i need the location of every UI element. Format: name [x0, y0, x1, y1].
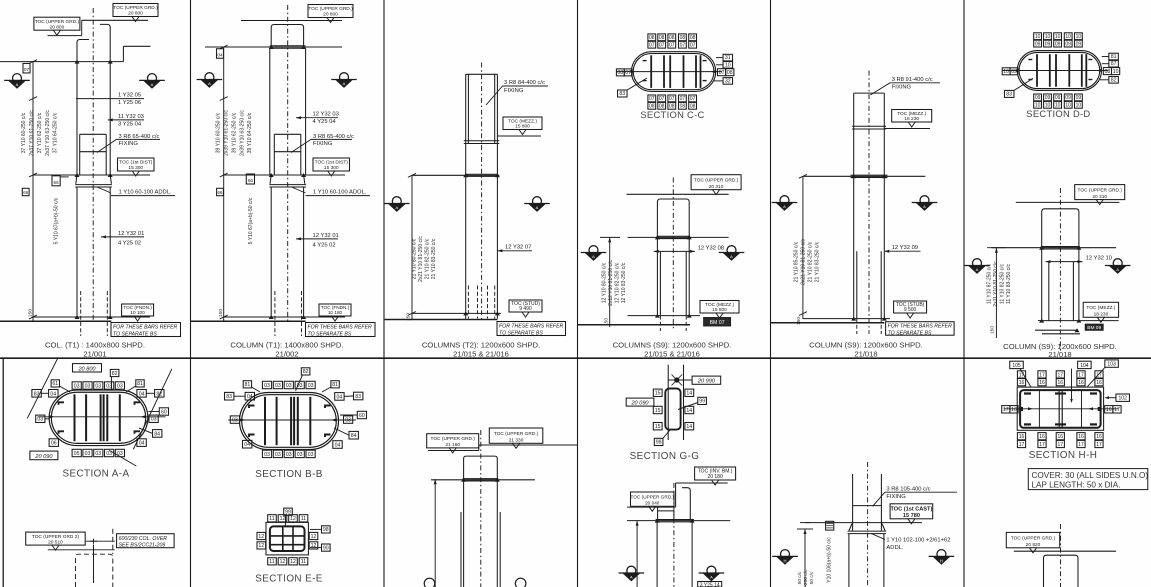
svg-text:21 Y10 80-250 c/c: 21 Y10 80-250 c/c [412, 238, 418, 279]
svg-text:15: 15 [655, 424, 661, 430]
svg-text:17: 17 [1114, 407, 1120, 413]
svg-text:21/018: 21/018 [854, 350, 877, 359]
svg-text:87: 87 [1111, 61, 1117, 67]
svg-text:2x39 Y10 61-250 c/c: 2x39 Y10 61-250 c/c [223, 110, 229, 156]
svg-text:4 Y25 02: 4 Y25 02 [118, 241, 141, 247]
svg-text:20 800: 20 800 [323, 12, 338, 18]
svg-text:11: 11 [269, 516, 274, 522]
svg-text:09: 09 [1045, 41, 1051, 47]
svg-text:03: 03 [264, 383, 270, 389]
svg-text:21 Y10 82-250 c/c: 21 Y10 82-250 c/c [425, 238, 431, 279]
svg-text:TOC (MEZZ.): TOC (MEZZ.) [897, 111, 926, 117]
svg-text:12: 12 [290, 559, 296, 565]
svg-text:11 Y10 83-250 c/c: 11 Y10 83-250 c/c [1006, 263, 1012, 304]
svg-text:21 Y10 82-250 c/c: 21 Y10 82-250 c/c [808, 241, 814, 282]
svg-text:83: 83 [619, 91, 625, 97]
svg-text:03: 03 [286, 383, 292, 389]
svg-text:11: 11 [269, 559, 274, 565]
svg-text:TOC (UPPER GRD.): TOC (UPPER GRD.) [308, 6, 353, 12]
svg-text:SECTION H-H: SECTION H-H [1029, 450, 1098, 461]
svg-text:600/230 COL. OVER: 600/230 COL. OVER [119, 536, 168, 542]
svg-text:09: 09 [1055, 95, 1061, 101]
svg-text:03: 03 [264, 452, 270, 458]
svg-text:09: 09 [1045, 95, 1051, 101]
svg-text:07: 07 [690, 96, 696, 102]
svg-text:09: 09 [1035, 95, 1041, 101]
svg-text:17: 17 [1058, 442, 1064, 448]
svg-text:08: 08 [659, 35, 665, 41]
svg-text:10: 10 [1113, 69, 1119, 75]
svg-text:TO SEPARATE BS: TO SEPARATE BS [113, 332, 157, 338]
svg-text:TOC (UPPER GRD.): TOC (UPPER GRD.) [430, 436, 475, 442]
svg-text:2x12 Y10 81-250 c/c: 2x12 Y10 81-250 c/c [608, 260, 614, 306]
svg-text:15 300: 15 300 [128, 165, 143, 171]
svg-text:150: 150 [604, 318, 610, 326]
svg-text:12 Y32 10: 12 Y32 10 [1086, 255, 1112, 261]
svg-text:16: 16 [1106, 407, 1112, 413]
svg-text:03: 03 [297, 383, 303, 389]
svg-text:09: 09 [1065, 95, 1071, 101]
svg-text:17: 17 [1003, 407, 1009, 413]
svg-text:03: 03 [106, 451, 112, 457]
svg-text:17: 17 [1096, 442, 1102, 448]
svg-text:98: 98 [323, 527, 329, 533]
svg-text:150: 150 [406, 313, 412, 321]
svg-text:12: 12 [290, 516, 296, 522]
svg-text:17: 17 [1078, 442, 1084, 448]
svg-text:12: 12 [311, 543, 317, 549]
svg-text:03: 03 [308, 383, 314, 389]
svg-text:08: 08 [649, 35, 655, 41]
svg-text:TOC (UPPER GRD 2): TOC (UPPER GRD 2) [32, 534, 79, 540]
svg-text:81: 81 [245, 382, 251, 388]
svg-text:150: 150 [796, 317, 802, 325]
svg-text:08: 08 [690, 35, 696, 41]
svg-text:06: 06 [51, 441, 57, 447]
svg-text:12 Y10 82-250 c/c: 12 Y10 82-250 c/c [615, 262, 621, 303]
svg-text:37 Y10 64-250 c/c: 37 Y10 64-250 c/c [53, 112, 59, 153]
svg-text:17: 17 [1039, 372, 1045, 378]
svg-text:03: 03 [275, 452, 281, 458]
svg-text:TO SEPARATE BS: TO SEPARATE BS [499, 331, 543, 337]
svg-text:03: 03 [345, 418, 351, 424]
svg-text:SECTION G-G: SECTION G-G [630, 451, 700, 462]
svg-text:15 800: 15 800 [515, 124, 530, 130]
svg-text:09: 09 [1076, 41, 1082, 47]
svg-text:08: 08 [617, 70, 623, 76]
svg-text:12 Y10 80-250 c/c: 12 Y10 80-250 c/c [602, 262, 608, 303]
svg-text:FIXING: FIXING [886, 494, 906, 500]
svg-text:12 Y32 08: 12 Y32 08 [698, 245, 724, 251]
svg-text:A: A [730, 254, 733, 259]
svg-text:05: 05 [74, 451, 80, 457]
svg-text:1 Y32 05: 1 Y32 05 [118, 93, 141, 99]
svg-text:12: 12 [258, 543, 264, 549]
svg-text:03: 03 [106, 383, 112, 389]
svg-text:03: 03 [117, 383, 123, 389]
svg-text:37 Y10 60-250 c/c: 37 Y10 60-250 c/c [21, 112, 27, 153]
svg-text:12: 12 [280, 559, 286, 565]
svg-text:21 Y10 83-250 c/c: 21 Y10 83-250 c/c [815, 241, 821, 282]
svg-text:12 Y32 07: 12 Y32 07 [505, 245, 531, 251]
svg-text:03: 03 [37, 417, 43, 423]
svg-text:12 Y32 09: 12 Y32 09 [892, 245, 918, 251]
svg-text:21/002: 21/002 [275, 350, 298, 359]
svg-text:5 Y10 67(a+b)-50 c/c: 5 Y10 67(a+b)-50 c/c [54, 197, 60, 244]
svg-text:1 Y10 60-100 ADOL.: 1 Y10 60-100 ADOL. [313, 190, 367, 196]
svg-text:09: 09 [1035, 41, 1041, 47]
svg-text:16: 16 [1039, 434, 1045, 440]
svg-text:SECTION D-D: SECTION D-D [1026, 108, 1090, 119]
svg-text:04: 04 [217, 52, 223, 58]
svg-text:16: 16 [1058, 380, 1064, 386]
svg-text:07: 07 [649, 43, 655, 49]
svg-text:21/015 & 21/016: 21/015 & 21/016 [453, 350, 509, 359]
svg-text:20 090: 20 090 [630, 401, 649, 407]
svg-text:FOR THESE BARS REFER: FOR THESE BARS REFER [308, 325, 373, 331]
svg-text:SEE BS/2CC21-209: SEE BS/2CC21-209 [119, 542, 166, 548]
svg-text:COLUMNS (T2): 1200x600 SHPD.: COLUMNS (T2): 1200x600 SHPD. [422, 341, 540, 350]
svg-text:16: 16 [1078, 380, 1084, 386]
svg-text:10: 10 [1045, 34, 1051, 40]
svg-text:H: H [940, 558, 943, 563]
svg-text:A: A [783, 204, 786, 209]
svg-text:39 Y10 64-250 c/c: 39 Y10 64-250 c/c [247, 112, 253, 153]
svg-text:A: A [923, 204, 926, 209]
svg-text:17: 17 [1058, 372, 1064, 378]
svg-text:104: 104 [1080, 363, 1089, 369]
svg-text:TOC (UPPER GRD.): TOC (UPPER GRD.) [1011, 535, 1056, 541]
svg-text:09: 09 [1076, 95, 1082, 101]
svg-text:TOC (MEZZ.): TOC (MEZZ.) [705, 302, 734, 308]
svg-text:03: 03 [286, 452, 292, 458]
svg-text:Y10 106(a+b)-50 c/c: Y10 106(a+b)-50 c/c [827, 537, 833, 583]
svg-text:A: A [343, 81, 346, 86]
svg-text:TOC (1st DIST): TOC (1st DIST) [315, 160, 349, 166]
svg-text:A: A [630, 575, 633, 580]
svg-text:15: 15 [655, 408, 661, 414]
svg-text:16: 16 [1019, 380, 1025, 386]
svg-text:39 Y10 60-250 c/c: 39 Y10 60-250 c/c [215, 112, 221, 153]
svg-text:TOC (1st CAST): TOC (1st CAST) [890, 507, 932, 513]
svg-text:A: A [1116, 267, 1119, 272]
svg-text:20 510: 20 510 [48, 539, 63, 545]
svg-text:14: 14 [686, 424, 692, 430]
svg-text:10: 10 [1055, 34, 1061, 40]
svg-text:21/018: 21/018 [1048, 350, 1071, 359]
svg-text:17: 17 [1039, 442, 1045, 448]
svg-text:15 300: 15 300 [324, 165, 339, 171]
svg-text:A: A [592, 254, 595, 259]
svg-text:03: 03 [95, 451, 101, 457]
svg-text:10 180: 10 180 [328, 310, 343, 315]
svg-text:3 Y25 14: 3 Y25 14 [700, 583, 720, 587]
svg-text:17: 17 [1078, 372, 1084, 378]
svg-text:10: 10 [1003, 69, 1009, 75]
svg-text:81: 81 [137, 381, 143, 387]
svg-text:4 Y25 02: 4 Y25 02 [313, 243, 336, 249]
svg-text:COLUMN (S9): 1200x600 SHPD.: COLUMN (S9): 1200x600 SHPD. [809, 341, 923, 350]
svg-text:TOC (UPPER GRD.): TOC (UPPER GRD.) [113, 5, 158, 11]
svg-text:FOR THESE BARS REFER: FOR THESE BARS REFER [113, 325, 178, 331]
svg-text:5 Y10 67(a+b)-50 c/c: 5 Y10 67(a+b)-50 c/c [248, 197, 254, 244]
svg-text:07: 07 [24, 67, 30, 73]
svg-text:04: 04 [337, 394, 343, 400]
svg-text:3 Y25 04: 3 Y25 04 [118, 122, 142, 128]
svg-text:12 Y32 03: 12 Y32 03 [313, 112, 339, 118]
svg-text:2x37 Y10 61-250 c/c: 2x37 Y10 61-250 c/c [29, 110, 35, 156]
svg-text:2x21 Y10 81-250 c/c: 2x21 Y10 81-250 c/c [418, 236, 424, 282]
svg-text:83: 83 [226, 394, 232, 400]
svg-text:16: 16 [1078, 434, 1084, 440]
svg-text:20 800: 20 800 [128, 11, 143, 17]
svg-text:FIXING: FIXING [892, 85, 912, 91]
svg-text:TO SEPARATE BS: TO SEPARATE BS [888, 330, 932, 336]
svg-text:14: 14 [686, 408, 692, 414]
svg-text:07: 07 [719, 70, 725, 76]
svg-text:103: 103 [1107, 362, 1116, 368]
svg-text:09: 09 [1055, 41, 1061, 47]
svg-text:16: 16 [1019, 434, 1025, 440]
svg-text:TOC (1st DIST): TOC (1st DIST) [119, 160, 153, 166]
svg-text:11: 11 [301, 516, 306, 522]
svg-text:07: 07 [680, 43, 686, 49]
svg-text:A: A [208, 81, 211, 86]
svg-text:150: 150 [990, 326, 996, 334]
svg-text:21/001: 21/001 [83, 350, 106, 359]
svg-text:21 330: 21 330 [509, 438, 524, 444]
svg-text:37 Y10 62-250 c/c: 37 Y10 62-250 c/c [37, 112, 43, 153]
svg-text:83: 83 [34, 391, 40, 397]
svg-text:60: 60 [359, 413, 365, 419]
svg-text:16: 16 [1058, 434, 1064, 440]
svg-text:H: H [783, 558, 786, 563]
svg-text:83: 83 [1006, 92, 1012, 98]
svg-text:A: A [16, 82, 19, 87]
svg-text:16: 16 [1039, 380, 1045, 386]
svg-text:21 Y10 83-250 c/c: 21 Y10 83-250 c/c [431, 238, 437, 279]
svg-text:BM 09: BM 09 [1087, 325, 1101, 331]
svg-text:20 800: 20 800 [50, 24, 65, 30]
svg-text:09: 09 [1065, 41, 1071, 47]
svg-text:21/015 & 21/016: 21/015 & 21/016 [644, 350, 700, 359]
svg-text:04: 04 [139, 441, 145, 447]
svg-text:20 310: 20 310 [1092, 194, 1107, 200]
svg-text:FOR THESE BARS REFER: FOR THESE BARS REFER [499, 324, 564, 330]
svg-text:A: A [395, 205, 398, 210]
svg-text:03: 03 [232, 418, 238, 424]
svg-text:COLUMN (T1): 1400x800 SHPD.: COLUMN (T1): 1400x800 SHPD. [230, 341, 343, 350]
svg-text:16 230: 16 230 [904, 116, 919, 122]
svg-text:TOC (UPPER GRD.): TOC (UPPER GRD.) [494, 431, 539, 437]
svg-text:11: 11 [301, 559, 306, 565]
svg-text:04: 04 [139, 391, 145, 397]
svg-text:LAP LENGTH: 50 x DIA.: LAP LENGTH: 50 x DIA. [1032, 481, 1121, 490]
svg-text:ADDL.: ADDL. [886, 545, 903, 551]
svg-text:2x39 Y10 63-250 c/c: 2x39 Y10 63-250 c/c [239, 110, 245, 156]
svg-text:TOC (UPPER GRD.): TOC (UPPER GRD.) [35, 19, 80, 25]
svg-text:TOC (UPPER GRD.): TOC (UPPER GRD.) [1077, 187, 1122, 193]
svg-text:A: A [976, 267, 979, 272]
svg-text:20 040: 20 040 [645, 501, 660, 506]
svg-text:12: 12 [258, 534, 264, 540]
svg-text:1 Y25 06: 1 Y25 06 [118, 100, 141, 106]
svg-text:21 Y10 85-250 c/c: 21 Y10 85-250 c/c [794, 241, 800, 282]
svg-text:SECTION C-C: SECTION C-C [640, 109, 704, 120]
svg-text:3 R8 91-400 c/c: 3 R8 91-400 c/c [892, 77, 933, 83]
svg-text:12: 12 [280, 516, 286, 522]
svg-text:20 090: 20 090 [34, 454, 53, 460]
svg-text:COL. (T1) : 1400x800 SHPD.: COL. (T1) : 1400x800 SHPD. [45, 341, 145, 350]
svg-text:TOC (MEZZ.): TOC (MEZZ.) [1086, 305, 1115, 311]
svg-text:3 R8 65-400 c/c: 3 R8 65-400 c/c [313, 134, 354, 140]
svg-text:90: 90 [323, 545, 329, 551]
svg-text:07: 07 [680, 96, 686, 102]
svg-text:1 Y10 60-100 ADDL.: 1 Y10 60-100 ADDL. [119, 190, 172, 196]
svg-text:11 Y10 82-250 c/c: 11 Y10 82-250 c/c [1000, 263, 1006, 304]
svg-text:32: 32 [725, 78, 731, 84]
svg-text:FIXING: FIXING [119, 141, 139, 147]
svg-text:9 500: 9 500 [904, 307, 917, 313]
svg-text:66: 66 [23, 190, 28, 195]
svg-text:FIXING: FIXING [504, 88, 524, 94]
svg-text:31: 31 [725, 55, 731, 61]
svg-text:TOC (UPPER GRD.): TOC (UPPER GRD.) [631, 494, 675, 499]
svg-text:04: 04 [247, 394, 253, 400]
svg-text:81: 81 [332, 382, 338, 388]
svg-text:39 Y10 62-250 c/c: 39 Y10 62-250 c/c [231, 112, 237, 153]
svg-text:03: 03 [151, 417, 157, 423]
svg-text:A: A [536, 205, 539, 210]
svg-text:03: 03 [95, 383, 101, 389]
svg-text:TO SEPARATE BS: TO SEPARATE BS [308, 332, 352, 338]
svg-text:TOC (MEZZ.): TOC (MEZZ.) [508, 118, 537, 124]
svg-text:16: 16 [1096, 380, 1102, 386]
svg-text:82: 82 [1111, 77, 1117, 83]
svg-text:20 820: 20 820 [1026, 542, 1041, 548]
svg-text:15: 15 [655, 391, 661, 397]
svg-text:07: 07 [669, 43, 675, 49]
svg-text:A: A [151, 82, 154, 87]
svg-text:15 800: 15 800 [712, 307, 727, 313]
svg-text:50 c/c: 50 c/c [797, 571, 803, 584]
svg-text:04: 04 [244, 442, 250, 448]
svg-text:20 800: 20 800 [77, 366, 96, 372]
svg-text:16: 16 [1011, 407, 1017, 413]
svg-text:SECTION E-E: SECTION E-E [255, 574, 323, 585]
svg-text:A: A [710, 575, 713, 580]
svg-text:10: 10 [725, 62, 731, 68]
svg-text:07: 07 [649, 96, 655, 102]
svg-text:07: 07 [669, 96, 675, 102]
svg-text:10 100: 10 100 [130, 310, 145, 315]
svg-text:07: 07 [690, 43, 696, 49]
svg-text:03: 03 [85, 383, 91, 389]
svg-text:20 990: 20 990 [697, 379, 716, 385]
svg-text:03: 03 [117, 451, 123, 457]
svg-text:4 Y25 04: 4 Y25 04 [313, 119, 337, 125]
svg-text:2x11 Y10 81-250 c/c: 2x11 Y10 81-250 c/c [993, 261, 999, 307]
svg-text:08: 08 [1105, 69, 1111, 75]
svg-text:04: 04 [50, 391, 56, 397]
svg-text:66: 66 [218, 190, 223, 195]
svg-text:3 R8 84-400 c/c: 3 R8 84-400 c/c [504, 80, 545, 86]
svg-text:20 180: 20 180 [707, 474, 723, 480]
svg-text:14: 14 [686, 391, 692, 397]
svg-text:3 R8 105-400 c/c: 3 R8 105-400 c/c [886, 486, 930, 492]
svg-text:03: 03 [297, 452, 303, 458]
svg-text:10: 10 [1065, 34, 1071, 40]
svg-text:82: 82 [156, 391, 162, 397]
svg-text:84: 84 [154, 431, 160, 437]
svg-text:10: 10 [1076, 34, 1082, 40]
svg-text:08: 08 [727, 70, 733, 76]
svg-text:03: 03 [275, 383, 281, 389]
svg-text:2x21 Y10 81-250 c/c: 2x21 Y10 81-250 c/c [801, 239, 807, 285]
svg-text:18 230: 18 230 [1094, 312, 1109, 318]
svg-text:50 c/c: 50 c/c [809, 571, 815, 584]
svg-text:03: 03 [85, 451, 91, 457]
svg-text:105: 105 [1012, 363, 1021, 369]
svg-text:04: 04 [335, 443, 341, 449]
svg-text:9 490: 9 490 [519, 306, 532, 312]
svg-text:21 160: 21 160 [445, 442, 460, 448]
svg-text:16: 16 [1096, 434, 1102, 440]
svg-text:07: 07 [659, 43, 665, 49]
svg-text:82: 82 [303, 369, 309, 375]
svg-text:84: 84 [351, 433, 357, 439]
svg-text:12 Y10 83-250 c/c: 12 Y10 83-250 c/c [621, 262, 627, 303]
svg-text:150: 150 [28, 309, 34, 317]
svg-text:82: 82 [112, 371, 118, 377]
svg-text:07: 07 [659, 96, 665, 102]
svg-text:TOC (UPPER GRD.): TOC (UPPER GRD.) [694, 177, 739, 183]
svg-text:09: 09 [1011, 69, 1017, 75]
svg-text:83: 83 [355, 394, 361, 400]
svg-text:08: 08 [669, 35, 675, 41]
svg-text:17: 17 [1019, 442, 1025, 448]
svg-text:-250 c/c: -250 c/c [803, 569, 809, 587]
svg-text:102: 102 [1119, 396, 1128, 402]
svg-text:3 R8 65-400 c/c: 3 R8 65-400 c/c [119, 134, 160, 140]
svg-text:COLUMNS (S9): 1200x600 SHPD.: COLUMNS (S9): 1200x600 SHPD. [613, 341, 732, 350]
svg-text:2x37 Y10 63-250 c/c: 2x37 Y10 63-250 c/c [45, 110, 51, 156]
svg-text:BM 07: BM 07 [710, 320, 725, 326]
svg-text:COVER: 30 (ALL SIDES U.N.O): COVER: 30 (ALL SIDES U.N.O) [1032, 471, 1149, 480]
svg-text:SECTION A-A: SECTION A-A [63, 469, 130, 480]
svg-text:FIXING: FIXING [313, 141, 333, 147]
svg-text:03: 03 [308, 452, 314, 458]
svg-text:11 Y32 03: 11 Y32 03 [118, 114, 144, 120]
svg-text:61: 61 [52, 381, 58, 387]
svg-text:20 310: 20 310 [709, 184, 724, 190]
svg-text:66: 66 [248, 178, 254, 183]
svg-text:10: 10 [1035, 34, 1041, 40]
svg-text:08: 08 [680, 35, 686, 41]
svg-text:98: 98 [656, 440, 662, 446]
svg-text:66: 66 [54, 180, 60, 185]
svg-text:60: 60 [161, 409, 167, 415]
svg-text:FOR THESE BARS REFER: FOR THESE BARS REFER [888, 324, 953, 330]
svg-text:81: 81 [1111, 54, 1117, 60]
svg-text:12 Y32 01: 12 Y32 01 [118, 231, 144, 237]
svg-text:12: 12 [311, 534, 317, 540]
svg-text:07: 07 [625, 70, 631, 76]
svg-text:99: 99 [699, 399, 705, 405]
svg-text:1 Y10 102-100 +2/61+62: 1 Y10 102-100 +2/61+62 [886, 538, 950, 544]
svg-text:15 780: 15 780 [903, 513, 920, 519]
svg-text:12 Y32 01: 12 Y32 01 [313, 233, 339, 239]
